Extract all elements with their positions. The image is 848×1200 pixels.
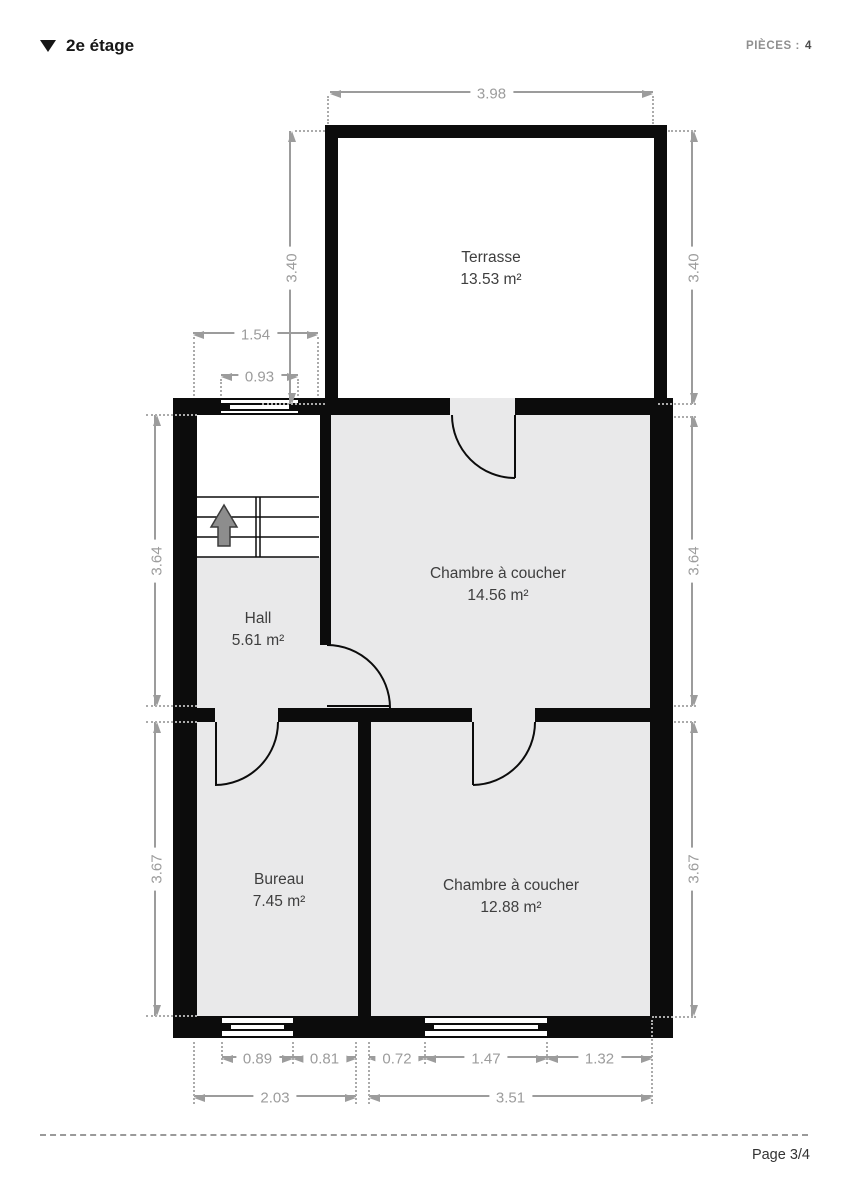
extension-line — [220, 379, 222, 396]
dimension-terrace-width: 3.98 — [330, 91, 653, 93]
dimension-bureau-window-offset: 0.81 — [293, 1056, 356, 1058]
extension-line — [146, 1015, 197, 1017]
wall-bureau-bedroom — [358, 722, 371, 1016]
door-gap-bedroom-2 — [472, 708, 535, 722]
room-area: 5.61 m² — [232, 630, 285, 652]
room-label-bedroom-1: Chambre à coucher 14.56 m² — [430, 563, 566, 607]
dimension-hall-window: 0.93 — [221, 374, 298, 376]
wall-bottom-segment — [173, 1016, 222, 1038]
room-name: Bureau — [253, 869, 306, 891]
extension-line — [327, 96, 329, 124]
extension-line — [674, 416, 696, 418]
room-name: Terrasse — [460, 247, 521, 269]
collapse-triangle-icon — [40, 40, 56, 52]
extension-line — [674, 705, 696, 707]
dimension-upper-depth-left: 3.64 — [154, 415, 156, 706]
room-name: Hall — [232, 608, 285, 630]
room-label-terrasse: Terrasse 13.53 m² — [460, 247, 521, 291]
stairs — [197, 497, 319, 557]
extension-line — [193, 1042, 195, 1104]
wall-bottom-segment — [293, 1016, 425, 1038]
wall-middle-segment — [535, 708, 673, 722]
floor-title[interactable]: 2e étage — [40, 36, 134, 56]
dimension-lower-depth-right: 3.67 — [691, 722, 693, 1016]
footer-separator — [40, 1134, 808, 1136]
extension-line — [674, 721, 696, 723]
window-bureau — [222, 1016, 293, 1038]
dimension-upper-depth-right: 3.64 — [691, 416, 693, 706]
rooms-count-label: PIÈCES : — [746, 40, 800, 52]
extension-line — [546, 1042, 548, 1064]
extension-line — [652, 96, 654, 124]
room-label-bedroom-2: Chambre à coucher 12.88 m² — [443, 875, 579, 919]
dimension-bureau-window: 0.89 — [222, 1056, 293, 1058]
extension-line — [658, 403, 696, 405]
extension-line — [368, 1042, 370, 1104]
extension-line — [295, 130, 325, 132]
extension-line — [652, 1016, 696, 1018]
door-gap-hall — [320, 645, 331, 708]
dimension-bedroom-window-offset: 0.72 — [369, 1056, 425, 1058]
extension-line — [146, 414, 197, 416]
floor-plan-page: 2e étage PIÈCES :4 — [0, 0, 848, 1200]
dimension-terrace-height-left: 3.40 — [289, 131, 291, 404]
extension-line — [146, 705, 197, 707]
room-area: 14.56 m² — [430, 585, 566, 607]
rooms-count-value: 4 — [805, 40, 812, 52]
wall-terrace-right — [654, 138, 667, 398]
extension-line — [193, 337, 195, 396]
room-label-bureau: Bureau 7.45 m² — [253, 869, 306, 913]
wall-middle-segment — [278, 708, 472, 722]
extension-line — [292, 1042, 294, 1064]
room-fill-bedroom-1 — [331, 415, 650, 708]
extension-line — [262, 403, 325, 405]
room-area: 13.53 m² — [460, 269, 521, 291]
window-hall — [221, 398, 298, 415]
room-name: Chambre à coucher — [430, 563, 566, 585]
dimension-bedroom-window-right: 1.32 — [547, 1056, 652, 1058]
dimension-bureau-total-width: 2.03 — [194, 1095, 356, 1097]
extension-line — [317, 337, 319, 396]
extension-line — [146, 721, 197, 723]
dimension-lower-depth-left: 3.67 — [154, 722, 156, 1016]
extension-line — [668, 130, 696, 132]
page-number: Page 3/4 — [752, 1147, 810, 1163]
dimension-bedroom-total-width: 3.51 — [369, 1095, 652, 1097]
room-label-hall: Hall 5.61 m² — [232, 608, 285, 652]
wall-hall-bedroom — [320, 415, 331, 645]
door-gap-terrace — [450, 398, 515, 415]
stairs-up-arrow-icon — [211, 505, 237, 546]
extension-line — [297, 379, 299, 396]
door-gap-bureau — [215, 708, 278, 722]
extension-line — [221, 1042, 223, 1064]
wall-bottom-segment — [547, 1016, 673, 1038]
wall-terrace-top — [325, 125, 667, 138]
dimension-hall-north-width: 1.54 — [193, 332, 318, 334]
dimension-bedroom-window: 1.47 — [425, 1056, 547, 1058]
dimension-terrace-height-right: 3.40 — [691, 131, 693, 404]
room-area: 12.88 m² — [443, 897, 579, 919]
extension-line — [424, 1042, 426, 1064]
rooms-count: PIÈCES :4 — [746, 40, 812, 52]
room-area: 7.45 m² — [253, 891, 306, 913]
room-name: Chambre à coucher — [443, 875, 579, 897]
window-bedroom-2 — [425, 1016, 547, 1038]
extension-line — [355, 1042, 357, 1104]
floor-title-label: 2e étage — [66, 36, 134, 56]
room-fill-bedroom-2 — [371, 722, 650, 1016]
extension-line — [651, 1020, 653, 1104]
wall-middle-segment — [173, 708, 215, 722]
wall-top-segment — [298, 398, 450, 415]
wall-terrace-left — [325, 138, 338, 398]
